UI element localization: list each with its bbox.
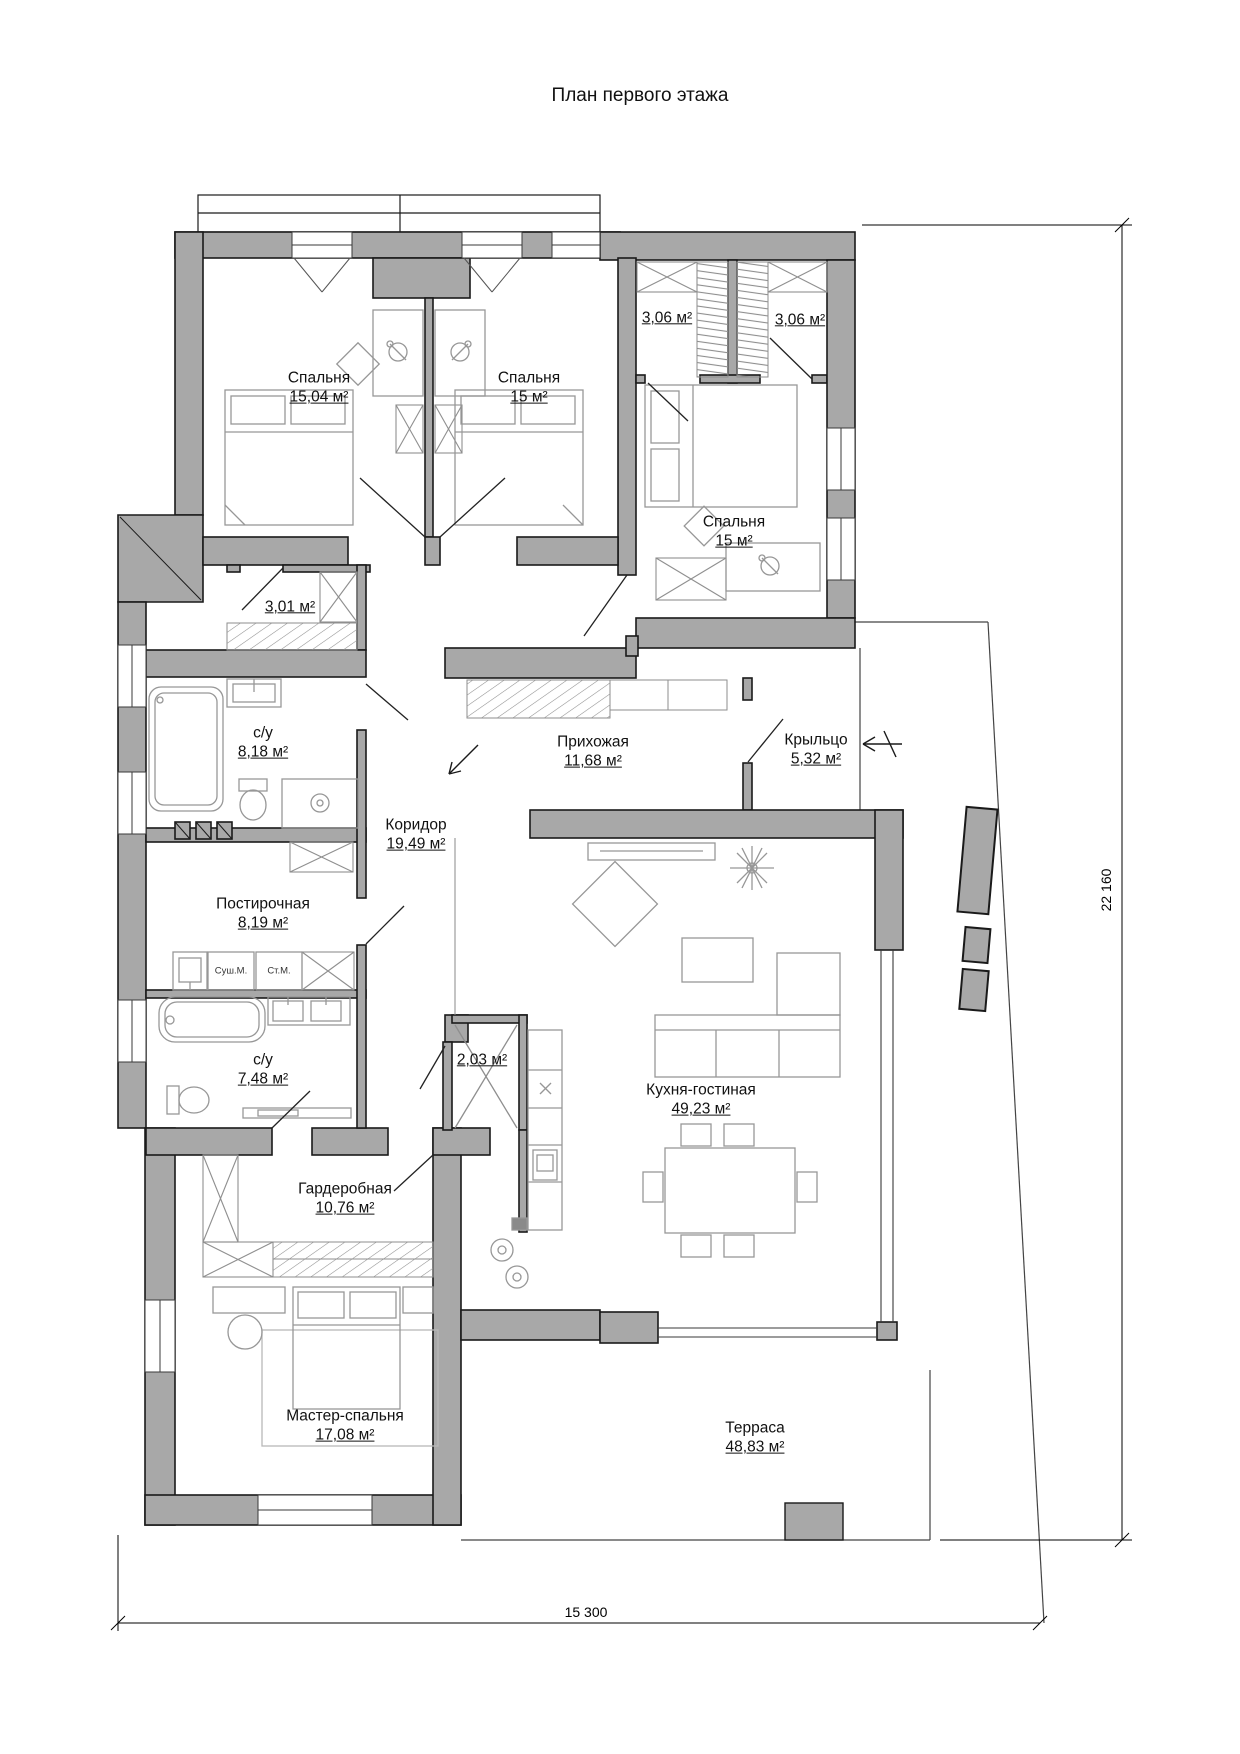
room-label-bedroom-1: Спальня15,04 м² — [288, 369, 350, 408]
room-area: 48,83 м² — [725, 1438, 784, 1457]
toilet-1 — [239, 779, 267, 820]
page-title: План первого этажа — [552, 85, 729, 107]
room-label-laundry: Постирочная8,19 м² — [216, 895, 310, 934]
coffee-table — [682, 938, 753, 982]
toilet-2 — [167, 1086, 209, 1114]
room-name: Спальня — [288, 369, 350, 388]
canopy — [198, 195, 600, 232]
bed-1 — [225, 390, 353, 525]
floor-plan: План первого этажа Спальня15,04 м²Спальн… — [0, 0, 1240, 1754]
room-label-closet-left: 3,06 м² — [642, 308, 692, 327]
entry-arrow-icon — [863, 731, 902, 757]
shower-1 — [282, 779, 358, 828]
room-name: Гардеробная — [298, 1180, 392, 1199]
room-area: 3,06 м² — [775, 310, 825, 329]
room-label-bathroom-2: с/у7,48 м² — [238, 1051, 288, 1090]
tv-console — [588, 843, 715, 860]
appliance-label-washer: Ст.М. — [267, 966, 290, 977]
room-name: Крыльцо — [784, 731, 847, 750]
room-name: с/у — [238, 1051, 288, 1070]
room-area: 3,06 м² — [642, 308, 692, 327]
laundry-sink — [173, 952, 207, 990]
room-area: 15 м² — [498, 388, 560, 407]
room-label-terrace: Терраса48,83 м² — [725, 1419, 784, 1458]
dimension-bottom: 15 300 — [565, 1604, 608, 1620]
room-label-bedroom-2: Спальня15 м² — [498, 369, 560, 408]
walls — [118, 232, 903, 1525]
desk-2 — [435, 310, 485, 396]
kitchen-arrow-icon — [449, 745, 478, 774]
pantry-shelves — [455, 1025, 517, 1128]
room-name: Мастер-спальня — [286, 1407, 404, 1426]
room-label-master-bedroom: Мастер-спальня17,08 м² — [286, 1407, 404, 1446]
vanity-2 — [268, 997, 350, 1025]
dimension-right: 22 160 — [1098, 869, 1114, 912]
room-name: Коридор — [385, 816, 446, 835]
room-area: 15,04 м² — [288, 388, 350, 407]
room-name: Прихожая — [557, 733, 629, 752]
room-area: 19,49 м² — [385, 835, 446, 854]
counter-2 — [243, 1108, 351, 1118]
sofa — [655, 953, 840, 1077]
room-area: 8,18 м² — [238, 743, 288, 762]
master-bed — [293, 1287, 400, 1409]
room-area: 2,03 м² — [457, 1050, 507, 1069]
room-name: Спальня — [703, 513, 765, 532]
room-label-entry-hall: Прихожая11,68 м² — [557, 733, 629, 772]
furniture — [149, 310, 840, 1446]
room-label-closet-right: 3,06 м² — [775, 310, 825, 329]
room-name: Терраса — [725, 1419, 784, 1438]
room-area: 5,32 м² — [784, 750, 847, 769]
room-area: 3,01 м² — [265, 597, 315, 616]
room-label-kitchen-living: Кухня-гостиная49,23 м² — [646, 1081, 756, 1120]
armchair — [573, 862, 658, 947]
room-label-pantry: 2,03 м² — [457, 1050, 507, 1069]
desk-1 — [373, 310, 423, 396]
sink-1 — [227, 679, 281, 707]
bathtub-1 — [149, 687, 223, 811]
bed-3 — [645, 385, 797, 507]
room-label-hall-closet: 3,01 м² — [265, 597, 315, 616]
desk-chairs — [337, 341, 471, 385]
room-name: с/у — [238, 724, 288, 743]
room-area: 49,23 м² — [646, 1100, 756, 1119]
room-name: Спальня — [498, 369, 560, 388]
appliance-label-dryer: Суш.М. — [215, 966, 247, 977]
floor-plan-drawing — [0, 0, 1240, 1754]
room-area: 15 м² — [703, 532, 765, 551]
room-name: Кухня-гостиная — [646, 1081, 756, 1100]
room-area: 17,08 м² — [286, 1426, 404, 1445]
room-area: 11,68 м² — [557, 752, 629, 771]
storage-hatches — [227, 262, 768, 1277]
room-name: Постирочная — [216, 895, 310, 914]
room-label-porch: Крыльцо5,32 м² — [784, 731, 847, 770]
room-label-wardrobe-room: Гардеробная10,76 м² — [298, 1180, 392, 1219]
room-area: 10,76 м² — [298, 1199, 392, 1218]
bathtub-2 — [159, 997, 265, 1042]
bed-2 — [455, 390, 583, 525]
dining-table — [643, 1124, 817, 1257]
room-label-bedroom-3: Спальня15 м² — [703, 513, 765, 552]
room-label-corridor: Коридор19,49 м² — [385, 816, 446, 855]
room-label-bathroom-1: с/у8,18 м² — [238, 724, 288, 763]
room-area: 8,19 м² — [216, 914, 310, 933]
room-area: 7,48 м² — [238, 1070, 288, 1089]
terrace-glazing — [658, 950, 893, 1337]
plant-icon — [730, 846, 774, 890]
